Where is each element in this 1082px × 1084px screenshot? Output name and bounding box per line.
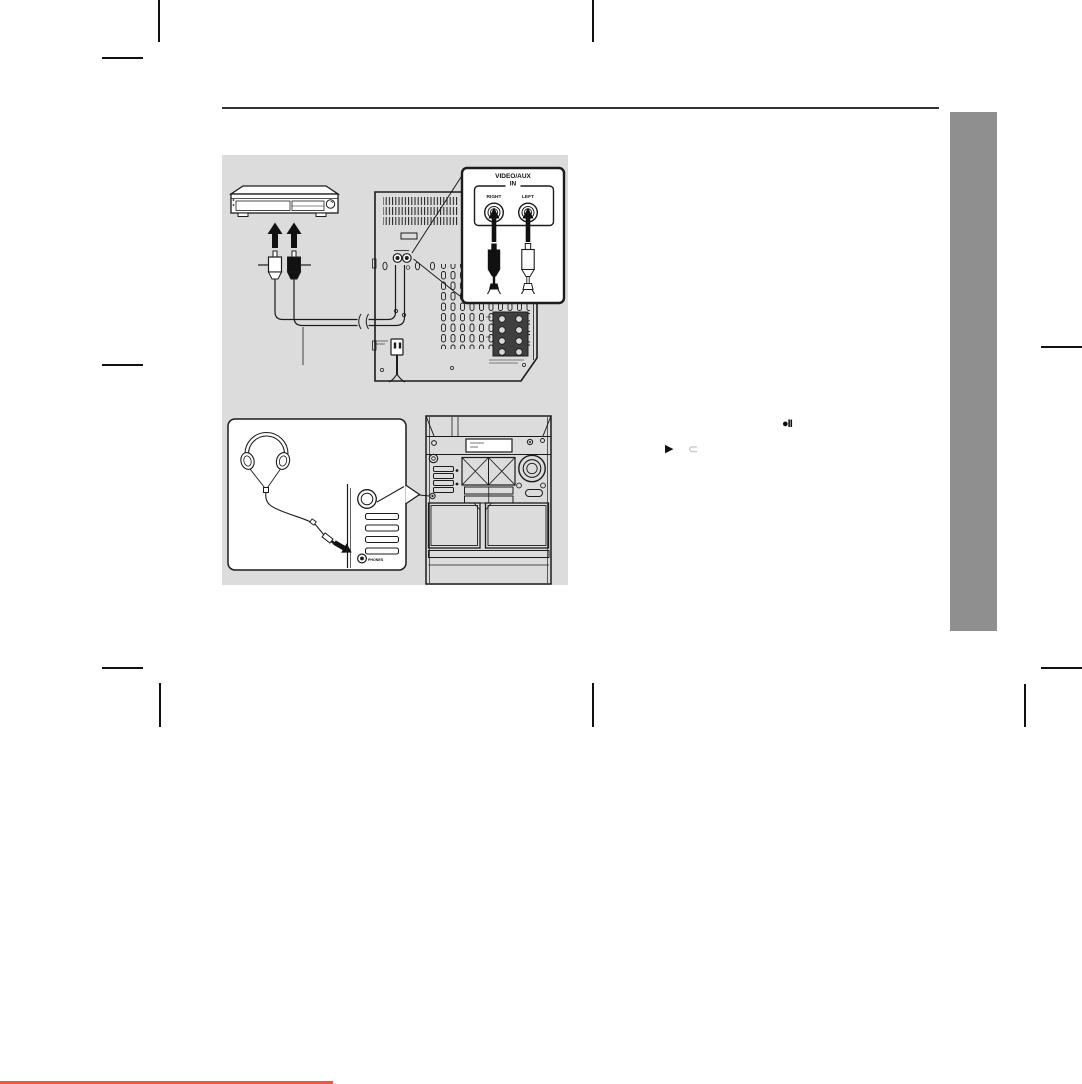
- phones-jack-label: PHONES: [368, 558, 384, 562]
- crop-mark-top-left-h: [102, 57, 143, 59]
- crop-mark-mid-right-h: [1041, 346, 1082, 348]
- connection-diagram: VIDEO/AUX IN RIGHT LEFT: [222, 155, 568, 585]
- rec-pause-icon: ●II: [782, 419, 792, 430]
- right-jack-label: RIGHT: [487, 194, 502, 200]
- crop-mark-bottom-right-v: [1024, 684, 1026, 727]
- videoaux-title: VIDEO/AUX: [495, 173, 531, 180]
- page-header-rule: [222, 107, 939, 109]
- headphones-callout: PHONES: [228, 419, 420, 570]
- crop-mark-bottom-center-v: [592, 683, 594, 727]
- chapter-side-tab: [950, 112, 997, 631]
- callout-plug-white: [522, 244, 535, 295]
- crop-mark-bottom-left-v: [159, 683, 161, 727]
- left-jack-label: LEFT: [522, 194, 534, 200]
- manual-page: VIDEO/AUX IN RIGHT LEFT: [0, 0, 1082, 1084]
- vcr-drawing: [231, 186, 338, 217]
- crop-mark-mid-left-h: [102, 364, 143, 366]
- crop-mark-top-left-v: [158, 0, 160, 42]
- videoaux-title-in: IN: [510, 181, 517, 188]
- videoaux-callout: VIDEO/AUX IN RIGHT LEFT: [462, 168, 564, 303]
- crop-mark-top-center-v: [592, 0, 594, 42]
- tape-direction-icon: ⊂: [688, 443, 698, 455]
- crop-mark-bottom-left-h: [102, 667, 143, 669]
- crop-mark-bottom-right-h: [1041, 667, 1082, 669]
- play-icon: ▶: [665, 444, 673, 455]
